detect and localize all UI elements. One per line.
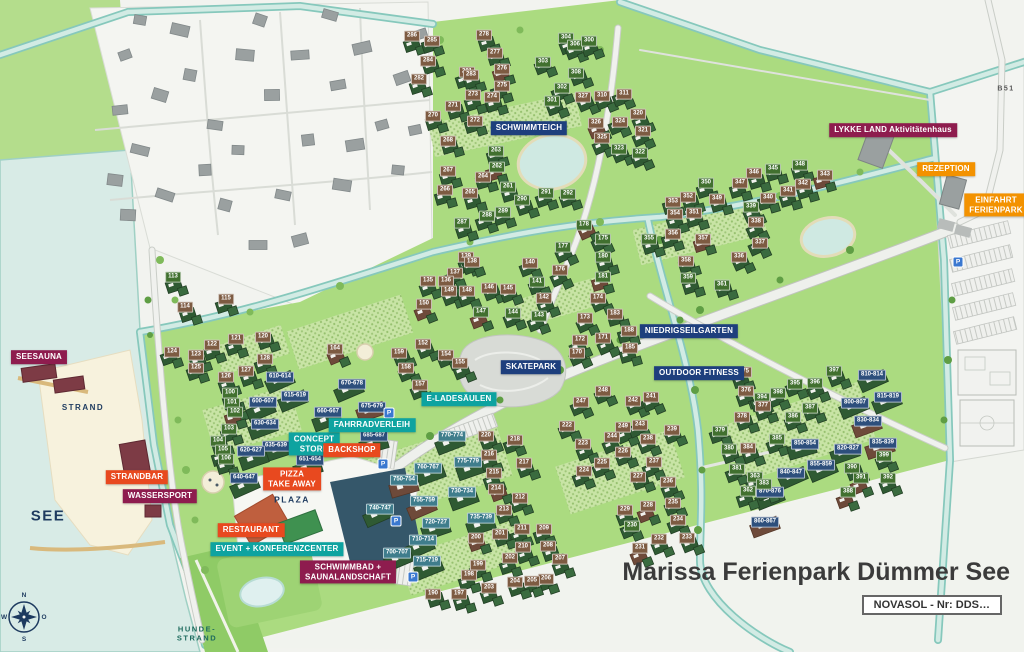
residential-house [199, 164, 212, 176]
unit-number-tag: 142 [536, 293, 552, 304]
unit-number-tag: 173 [577, 313, 593, 324]
unit-number-tag: 157 [412, 380, 428, 391]
unit-number-tag: 277 [487, 48, 503, 59]
unit-number-tag: 675-679 [358, 402, 386, 413]
unit-number-tag: 286 [404, 31, 420, 42]
unit-number-tag: 353 [665, 197, 681, 208]
unit-number-tag: 378 [734, 412, 750, 423]
unit-number-tag: 149 [441, 286, 457, 297]
facility-label: FAHRRADVERLEIH [329, 418, 416, 432]
unit-number-tag: 272 [467, 116, 483, 127]
unit-number-tag: 247 [573, 397, 589, 408]
unit-number-tag: 217 [516, 458, 532, 469]
unit-number-tag: 860-867 [751, 517, 779, 528]
parking-badge: P [408, 572, 419, 583]
unit-number-tag: 103 [221, 424, 237, 435]
unit-number-tag: 327 [575, 92, 591, 103]
unit-number-tag: 326 [588, 118, 604, 129]
unit-number-tag: 391 [853, 473, 869, 484]
unit-number-tag: 210 [515, 542, 531, 553]
unit-number-tag: 303 [535, 57, 551, 68]
unit-number-tag: 178 [576, 220, 592, 231]
unit-number-tag: 264 [475, 172, 491, 183]
unit-number-tag: 237 [646, 457, 662, 468]
unit-number-tag: 620-627 [237, 446, 265, 457]
unit-number-tag: 310 [594, 91, 610, 102]
facility-label: WASSERSPORT [123, 489, 197, 503]
unit-number-tag: 138 [464, 257, 480, 268]
unit-number-tag: 278 [476, 30, 492, 41]
unit-number-tag: 635-639 [262, 441, 290, 452]
parking-badge: P [384, 408, 395, 419]
unit-number-tag: 810-814 [858, 370, 886, 381]
unit-number-tag: 276 [494, 64, 510, 75]
facility-label: NIEDRIGSEILGARTEN [640, 324, 738, 338]
unit-number-tag: 125 [188, 363, 204, 374]
unit-number-tag: 750-754 [390, 475, 418, 486]
unit-number-tag: 234 [670, 515, 686, 526]
unit-number-tag: 685-687 [360, 431, 388, 442]
unit-number-tag: 770-774 [438, 431, 466, 442]
unit-number-tag: 120 [255, 332, 271, 343]
unit-number-tag: 820-827 [834, 444, 862, 455]
unit-number-tag: 357 [695, 234, 711, 245]
unit-number-tag: 660-667 [314, 407, 342, 418]
unit-number-tag: 158 [398, 363, 414, 374]
unit-number-tag: 126 [218, 372, 234, 383]
facility-label: SCHWIMMBAD + SAUNALANDSCHAFT [300, 560, 396, 583]
unit-number-tag: 289 [495, 207, 511, 218]
unit-number-tag: 231 [632, 543, 648, 554]
unit-number-tag: 214 [488, 484, 504, 495]
unit-number-tag: 172 [572, 335, 588, 346]
unit-number-tag: 122 [204, 340, 220, 351]
unit-number-tag: 349 [709, 194, 725, 205]
unit-number-tag: 337 [752, 238, 768, 249]
unit-number-tag: 124 [164, 347, 180, 358]
unit-number-tag: 271 [445, 101, 461, 112]
unit-number-tag: 615-619 [281, 391, 309, 402]
unit-number-tag: 755-759 [410, 496, 438, 507]
unit-number-tag: 150 [416, 299, 432, 310]
unit-number-tag: 381 [729, 464, 745, 475]
residential-house [236, 49, 255, 62]
unit-number-tag: 140 [522, 258, 538, 269]
unit-number-tag: 383 [756, 479, 772, 490]
unit-number-tag: 600-607 [249, 397, 277, 408]
unit-number-tag: 235 [665, 498, 681, 509]
unit-number-tag: 148 [459, 286, 475, 297]
unit-number-tag: 143 [531, 311, 547, 322]
unit-number-tag: 288 [479, 211, 495, 222]
compass-letter: W [1, 614, 8, 621]
unit-number-tag: 113 [165, 272, 181, 283]
unit-number-tag: 351 [686, 208, 702, 219]
unit-number-tag: 197 [451, 589, 467, 600]
unit-number-tag: 343 [817, 170, 833, 181]
unit-number-tag: 287 [454, 218, 470, 229]
unit-number-tag: 290 [514, 195, 530, 206]
unit-number-tag: 244 [604, 432, 620, 443]
unit-number-tag: 361 [714, 280, 730, 291]
unit-number-tag: 300 [581, 36, 597, 47]
unit-number-tag: 228 [640, 501, 656, 512]
unit-number-tag: 232 [651, 534, 667, 545]
residential-house [392, 165, 405, 175]
residential-house [249, 241, 267, 250]
unit-number-tag: 292 [560, 189, 576, 200]
unit-number-tag: 115 [218, 294, 234, 305]
unit-number-tag: 241 [643, 392, 659, 403]
unit-number-tag: 320 [630, 109, 646, 120]
unit-number-tag: 760-767 [414, 463, 442, 474]
unit-number-tag: 211 [514, 524, 530, 535]
unit-number-tag: 201 [492, 529, 508, 540]
unit-number-tag: 350 [698, 178, 714, 189]
unit-number-tag: 339 [743, 202, 759, 213]
unit-number-tag: 175 [595, 234, 611, 245]
unit-number-tag: 387 [802, 403, 818, 414]
unit-number-tag: 181 [595, 272, 611, 283]
unit-number-tag: 275 [494, 81, 510, 92]
unit-number-tag: 265 [462, 188, 478, 199]
unit-number-tag: 352 [680, 192, 696, 203]
unit-number-tag: 266 [437, 185, 453, 196]
unit-number-tag: 850-854 [791, 439, 819, 450]
unit-number-tag: 225 [594, 458, 610, 469]
unit-number-tag: 340 [760, 193, 776, 204]
residential-house [232, 145, 244, 154]
unit-number-tag: 222 [559, 421, 575, 432]
facility-label: OUTDOOR FITNESS [654, 366, 744, 380]
unit-number-tag: 392 [880, 473, 896, 484]
unit-number-tag: 274 [484, 92, 500, 103]
unit-number-tag: 236 [660, 477, 676, 488]
novasol-reference: NOVASOL - Nr: DDS… [862, 595, 1002, 615]
unit-number-tag: 145 [500, 284, 516, 295]
facility-label: E-LADESÄULEN [421, 392, 496, 406]
unit-number-tag: 301 [544, 96, 560, 107]
unit-number-tag: 735-739 [467, 513, 495, 524]
unit-number-tag: 218 [507, 435, 523, 446]
unit-number-tag: 206 [538, 574, 554, 585]
parking-badge: P [953, 257, 964, 268]
unit-number-tag: 347 [732, 178, 748, 189]
unit-number-tag: 147 [473, 307, 489, 318]
unit-number-tag: 209 [536, 524, 552, 535]
unit-number-tag: 146 [481, 283, 497, 294]
unit-number-tag: 830-834 [854, 416, 882, 427]
unit-number-tag: 376 [738, 386, 754, 397]
unit-number-tag: 212 [512, 493, 528, 504]
unit-number-tag: 123 [188, 350, 204, 361]
facility-label: BACKSHOP [323, 443, 380, 457]
unit-number-tag: 215 [486, 468, 502, 479]
unit-number-tag: 268 [440, 136, 456, 147]
residential-house [133, 15, 146, 26]
unit-number-tag: 800-807 [841, 398, 869, 409]
unit-number-tag: 203 [481, 583, 497, 594]
facility-label: PIZZA TAKE AWAY [263, 467, 321, 490]
unit-number-tag: 388 [840, 487, 856, 498]
residential-house [264, 89, 279, 100]
unit-number-tag: 263 [488, 146, 504, 157]
residential-house [291, 50, 310, 60]
unit-number-tag: 282 [411, 74, 427, 85]
unit-number-tag: 359 [680, 273, 696, 284]
unit-number-tag: 229 [617, 505, 633, 516]
unit-number-tag: 183 [607, 309, 623, 320]
unit-number-tag: 835-839 [869, 438, 897, 449]
residential-house [332, 178, 351, 192]
unit-number-tag: 227 [630, 472, 646, 483]
unit-number-tag: 226 [615, 447, 631, 458]
unit-number-tag: 311 [616, 89, 632, 100]
unit-number-tag: 144 [505, 308, 521, 319]
unit-number-tag: 338 [748, 217, 764, 228]
unit-number-tag: 170 [569, 348, 585, 359]
unit-number-tag: 127 [238, 366, 254, 377]
unit-number-tag: 262 [489, 162, 505, 173]
compass-letter: O [41, 614, 46, 621]
unit-number-tag: 670-678 [338, 379, 366, 390]
unit-number-tag: 398 [770, 388, 786, 399]
unit-number-tag: 399 [876, 451, 892, 462]
map-title: Marissa Ferienpark Dümmer See [622, 558, 1010, 587]
unit-number-tag: 152 [415, 339, 431, 350]
compass-letter: S [22, 636, 27, 643]
unit-number-tag: 283 [463, 70, 479, 81]
playground-2 [357, 344, 373, 360]
residential-house [301, 134, 314, 146]
unit-number-tag: 190 [425, 589, 441, 600]
unit-number-tag: 710-714 [409, 535, 437, 546]
unit-number-tag: 323 [611, 144, 627, 155]
unit-number-tag: 238 [640, 434, 656, 445]
unit-number-tag: 188 [621, 326, 637, 337]
facility-label: RESTAURANT [218, 523, 285, 537]
unit-number-tag: 302 [554, 83, 570, 94]
unit-number-tag: 135 [420, 276, 436, 287]
parking-badge: P [378, 459, 389, 470]
facility-label: SEESAUNA [11, 350, 67, 364]
unit-number-tag: 730-734 [448, 487, 476, 498]
unit-number-tag: 341 [780, 186, 796, 197]
compass-letter: N [22, 592, 27, 599]
unit-number-tag: 855-859 [807, 460, 835, 471]
area-label: PLAZA [274, 495, 310, 506]
unit-number-tag: 715-719 [413, 556, 441, 567]
unit-number-tag: 216 [481, 450, 497, 461]
unit-number-tag: 273 [465, 90, 481, 101]
residential-house [112, 105, 128, 116]
facility-label: EINFAHRT FERIENPARK [964, 193, 1024, 216]
unit-number-tag: 630-634 [251, 419, 279, 430]
unit-number-tag: 121 [228, 334, 244, 345]
unit-number-tag: 291 [538, 188, 554, 199]
unit-number-tag: 204 [507, 577, 523, 588]
unit-number-tag: 223 [575, 439, 591, 450]
unit-number-tag: 356 [665, 229, 681, 240]
unit-number-tag: 114 [177, 302, 193, 313]
unit-number-tag: 342 [795, 179, 811, 190]
unit-number-tag: 740-747 [366, 504, 394, 515]
park-map: NOSW Marissa Ferienpark Dümmer See NOVAS… [0, 0, 1024, 652]
unit-number-tag: 379 [712, 426, 728, 437]
unit-number-tag: 185 [622, 343, 638, 354]
unit-number-tag: 128 [257, 354, 273, 365]
parking-badge: P [391, 516, 402, 527]
unit-number-tag: 233 [679, 533, 695, 544]
unit-number-tag: 395 [787, 379, 803, 390]
unit-number-tag: 384 [740, 443, 756, 454]
unit-number-tag: 397 [826, 366, 842, 377]
unit-number-tag: 164 [327, 344, 343, 355]
unit-number-tag: 205 [524, 576, 540, 587]
unit-number-tag: 321 [635, 126, 651, 137]
unit-number-tag: 159 [391, 348, 407, 359]
unit-number-tag: 213 [496, 505, 512, 516]
unit-number-tag: 324 [612, 117, 628, 128]
unit-number-tag: 700-707 [383, 548, 411, 559]
facility-label: REZEPTION [917, 162, 975, 176]
unit-number-tag: 243 [632, 420, 648, 431]
facility-label: LYKKE LAND Aktivitätenhaus [829, 123, 957, 137]
wassersport-building [145, 505, 161, 517]
unit-number-tag: 106 [218, 454, 234, 465]
residential-house [107, 174, 123, 187]
unit-number-tag: 362 [740, 486, 756, 497]
unit-number-tag: 285 [424, 36, 440, 47]
unit-number-tag: 200 [468, 533, 484, 544]
unit-number-tag: 248 [595, 386, 611, 397]
unit-number-tag: 308 [568, 68, 584, 79]
unit-number-tag: 177 [555, 242, 571, 253]
unit-number-tag: 354 [667, 209, 683, 220]
unit-number-tag: 345 [765, 164, 781, 175]
unit-number-tag: 640-647 [230, 473, 258, 484]
unit-number-tag: 155 [452, 358, 468, 369]
unit-number-tag: 198 [461, 570, 477, 581]
residential-house [408, 124, 422, 135]
unit-number-tag: 102 [227, 407, 243, 418]
facility-label: SKATEPARK [501, 360, 561, 374]
facility-label: STRANDBAR [106, 470, 168, 484]
unit-number-tag: 202 [502, 553, 518, 564]
unit-number-tag: 840-847 [777, 468, 805, 479]
unit-number-tag: 377 [755, 401, 771, 412]
unit-number-tag: 141 [529, 277, 545, 288]
unit-number-tag: 322 [632, 148, 648, 159]
unit-number-tag: 385 [769, 434, 785, 445]
unit-number-tag: 720-727 [422, 518, 450, 529]
unit-number-tag: 207 [552, 554, 568, 565]
unit-number-tag: 346 [746, 168, 762, 179]
unit-number-tag: 174 [590, 293, 606, 304]
unit-number-tag: 325 [594, 133, 610, 144]
unit-number-tag: 355 [641, 234, 657, 245]
unit-number-tag: 242 [625, 396, 641, 407]
unit-number-tag: 815-819 [874, 392, 902, 403]
area-label: B51 [997, 86, 1014, 95]
unit-number-tag: 284 [420, 56, 436, 67]
unit-number-tag: 336 [731, 252, 747, 263]
unit-number-tag: 171 [595, 333, 611, 344]
residential-house [183, 68, 197, 81]
unit-number-tag: 224 [576, 466, 592, 477]
unit-number-tag: 348 [792, 160, 808, 171]
area-label: STRAND [62, 403, 104, 413]
unit-number-tag: 775-779 [454, 457, 482, 468]
unit-number-tag: 396 [807, 378, 823, 389]
unit-number-tag: 239 [664, 425, 680, 436]
unit-number-tag: 358 [678, 256, 694, 267]
area-label: HUNDE- STRAND [177, 625, 217, 644]
residential-house [207, 119, 223, 130]
unit-number-tag: 261 [500, 182, 516, 193]
unit-number-tag: 610-614 [266, 372, 294, 383]
unit-number-tag: 270 [425, 111, 441, 122]
facility-label: EVENT + KONFERENZCENTER [210, 542, 343, 556]
unit-number-tag: 220 [478, 431, 494, 442]
unit-number-tag: 180 [595, 252, 611, 263]
unit-number-tag: 380 [721, 444, 737, 455]
unit-number-tag: 230 [624, 521, 640, 532]
residential-house [345, 138, 364, 152]
unit-number-tag: 267 [440, 166, 456, 177]
residential-house [120, 209, 136, 221]
unit-number-tag: 208 [540, 541, 556, 552]
facility-label: SCHWIMMTEICH [491, 121, 567, 135]
unit-number-tag: 176 [552, 265, 568, 276]
unit-number-tag: 651-654 [296, 455, 324, 466]
area-label: SEE [31, 508, 66, 527]
unit-number-tag: 386 [785, 412, 801, 423]
